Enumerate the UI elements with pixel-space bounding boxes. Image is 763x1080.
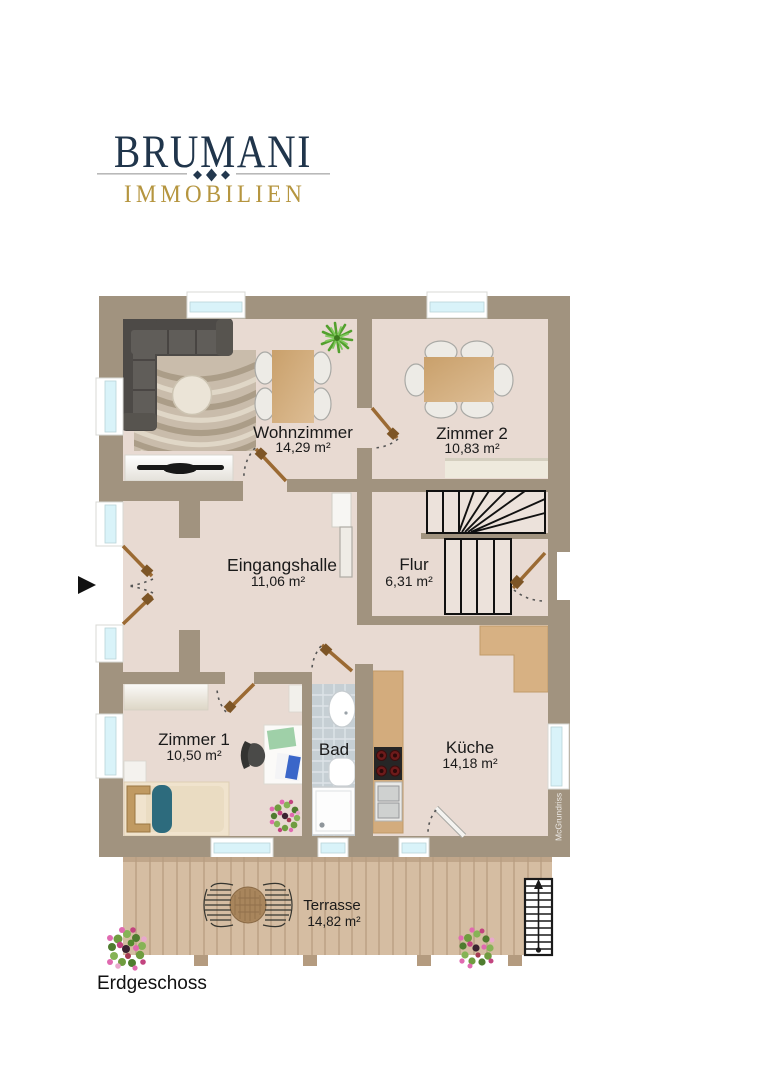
- svg-text:14,18 m²: 14,18 m²: [442, 755, 498, 771]
- svg-text:Bad: Bad: [319, 740, 349, 759]
- svg-text:14,82 m²: 14,82 m²: [307, 914, 361, 929]
- svg-text:11,06 m²: 11,06 m²: [251, 573, 306, 589]
- svg-text:BRUMANI: BRUMANI: [114, 126, 312, 178]
- svg-text:McGrundriss: McGrundriss: [554, 793, 564, 841]
- svg-text:10,50 m²: 10,50 m²: [166, 747, 222, 763]
- svg-text:Erdgeschoss: Erdgeschoss: [97, 973, 207, 994]
- svg-text:Eingangshalle: Eingangshalle: [227, 555, 337, 575]
- svg-text:14,29 m²: 14,29 m²: [275, 439, 331, 455]
- svg-text:6,31 m²: 6,31 m²: [385, 573, 433, 589]
- svg-text:Flur: Flur: [399, 555, 429, 574]
- svg-text:Terrasse: Terrasse: [303, 897, 361, 914]
- svg-text:IMMOBILIEN: IMMOBILIEN: [124, 181, 306, 208]
- svg-text:10,83 m²: 10,83 m²: [444, 440, 500, 456]
